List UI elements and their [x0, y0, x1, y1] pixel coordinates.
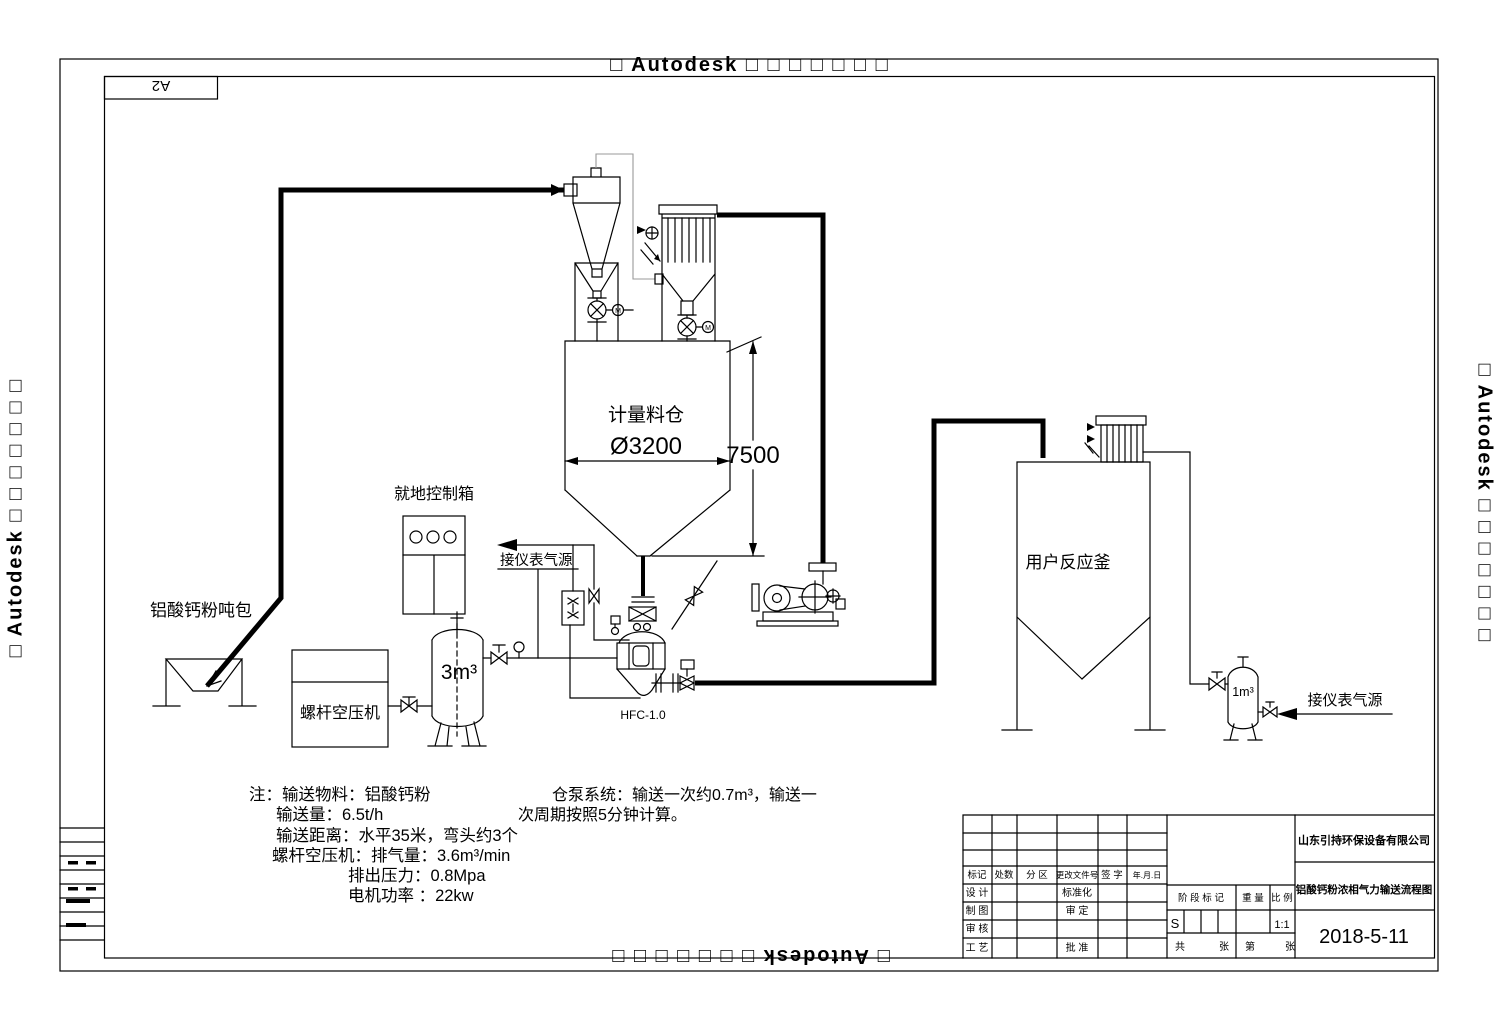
autodesk-watermark-bottom: □ Autodesk □ □ □ □ □ □ □	[0, 944, 1500, 967]
ton-bag-hopper: 铝酸钙粉吨包	[150, 601, 256, 706]
note-line: 输送距离：水平35米，弯头约3个	[276, 826, 518, 845]
instrument-air-right: 接仪表气源	[1277, 692, 1392, 720]
cad-drawing-canvas: □ Autodesk □ □ □ □ □ □ □ □ Autodesk □ □ …	[0, 0, 1500, 1036]
row-design: 设 计	[966, 886, 989, 899]
row-approve-check: 审 定	[1066, 904, 1089, 917]
note-line: 电机功率 ：22kw	[348, 886, 474, 905]
th-count: 处数	[994, 869, 1014, 881]
instrument-air-left: 接仪表气源	[497, 539, 640, 698]
th-date: 年.月.日	[1133, 870, 1161, 880]
instrument-air-label: 接仪表气源	[500, 552, 573, 569]
pressure-gauge-icon	[514, 642, 524, 652]
note-line: 注：输送物料：铝酸钙粉	[249, 785, 431, 804]
air-receiver-tank: 3m³	[428, 612, 570, 746]
silo-height-value: 7500	[726, 442, 779, 469]
pulse-jet-icon	[637, 226, 660, 264]
cyclone-separator	[543, 154, 663, 284]
feed-pipe	[207, 190, 564, 686]
note-line: 螺杆空压机：排气量：3.6m³/min	[272, 846, 510, 865]
dust-collector: M	[637, 205, 717, 341]
th-changedoc: 更改文件号	[1056, 870, 1099, 880]
reactor-label: 用户反应釜	[1026, 553, 1111, 572]
vent-filter	[1085, 416, 1146, 462]
indicator-lamp-icon	[427, 531, 439, 543]
arrow-left-icon	[1277, 708, 1297, 720]
notes-block: 注：输送物料：铝酸钙粉 输送量：6.5t/h 输送距离：水平35米，弯头约3个 …	[249, 785, 518, 905]
motor-label: M	[705, 325, 711, 332]
cyclone-discharge-bin: M	[575, 263, 633, 341]
process-flow-diagram: A2 铝酸钙粉吨包	[0, 0, 1500, 1036]
title-block: 标记 处数 分 区 更改文件号 签 字 年.月.日 设 计 制 图 审 核 工 …	[963, 815, 1434, 958]
autodesk-watermark-top: □ Autodesk □ □ □ □ □ □ □	[0, 54, 1500, 77]
indicator-lamp-icon	[444, 531, 456, 543]
valve-icon	[401, 697, 417, 712]
diameter-dimension: Ø3200	[565, 433, 730, 465]
ton-bag-label: 铝酸钙粉吨包	[150, 601, 252, 620]
indicator-lamp-icon	[410, 531, 422, 543]
row-check: 审 核	[966, 922, 989, 935]
drawing-frame: A2	[60, 59, 1438, 971]
rotary-valve-icon	[678, 315, 696, 339]
scale-value: 1:1	[1274, 919, 1289, 931]
user-reactor: 用户反应釜	[1002, 416, 1209, 730]
binding-strip-marks	[66, 861, 96, 927]
screw-compressor: 螺杆空压机	[292, 650, 432, 747]
sheet-size-label: A2	[152, 77, 170, 94]
local-control-box: 就地控制箱	[394, 485, 474, 614]
drawing-title: 铝酸钙粉浓相气力输送流程图	[1296, 883, 1433, 896]
suction-pipe	[717, 215, 823, 563]
pump-note-line: 次周期按照5分钟计算。	[518, 805, 687, 824]
measuring-silo: 计量料仓 Ø3200 7500	[565, 337, 780, 556]
autodesk-watermark-left: □ Autodesk □ □ □ □ □ □ □	[5, 368, 28, 668]
row-standardize: 标准化	[1062, 886, 1092, 899]
compressor-label: 螺杆空压机	[300, 704, 380, 722]
pump-note-block: 仓泵系统：输送一次约0.7m³，输送一 次周期按照5分钟计算。	[518, 786, 817, 824]
discharge-valve-icon	[680, 660, 694, 690]
hfc-pump-vessel: HFC-1.0	[611, 556, 717, 722]
arrow-left-icon	[497, 539, 517, 551]
stage-mark-value: S	[1171, 916, 1180, 931]
th-signature: 签 字	[1101, 869, 1123, 881]
motor-label: M	[615, 308, 621, 315]
company-name: 山东引持环保设备有限公司	[1298, 833, 1430, 847]
instrument-air-label: 接仪表气源	[1307, 692, 1382, 709]
vacuum-pump	[752, 563, 845, 626]
note-line: 输送量：6.5t/h	[276, 805, 383, 824]
air-tank-volume-label: 3m³	[441, 661, 477, 684]
silo-label: 计量料仓	[608, 404, 684, 426]
row-draft: 制 图	[966, 904, 989, 917]
buffer-tank: 1m³	[1209, 657, 1277, 740]
pump-model-label: HFC-1.0	[620, 708, 666, 722]
note-line: 排出压力：0.8Mpa	[348, 866, 486, 885]
valve-icon	[1209, 672, 1225, 690]
th-stage: 阶 段 标 记	[1178, 892, 1224, 904]
vent-valve-icon	[685, 587, 702, 606]
th-weight: 重 量	[1242, 892, 1264, 904]
buffer-tank-volume-label: 1m³	[1232, 685, 1254, 699]
th-mark: 标记	[967, 869, 987, 881]
rotary-valve-icon	[588, 298, 606, 322]
inlet-arrow-icon	[551, 184, 564, 196]
pump-note-line: 仓泵系统：输送一次约0.7m³，输送一	[552, 786, 817, 804]
valve-icon	[491, 645, 507, 664]
th-zone: 分 区	[1026, 870, 1048, 881]
autodesk-watermark-right: □ Autodesk □ □ □ □ □ □ □	[1473, 354, 1496, 654]
control-box-label: 就地控制箱	[394, 485, 474, 503]
silo-diameter-value: Ø3200	[610, 433, 682, 460]
th-scale: 比 例	[1271, 892, 1293, 904]
valve-icon	[1263, 702, 1277, 717]
